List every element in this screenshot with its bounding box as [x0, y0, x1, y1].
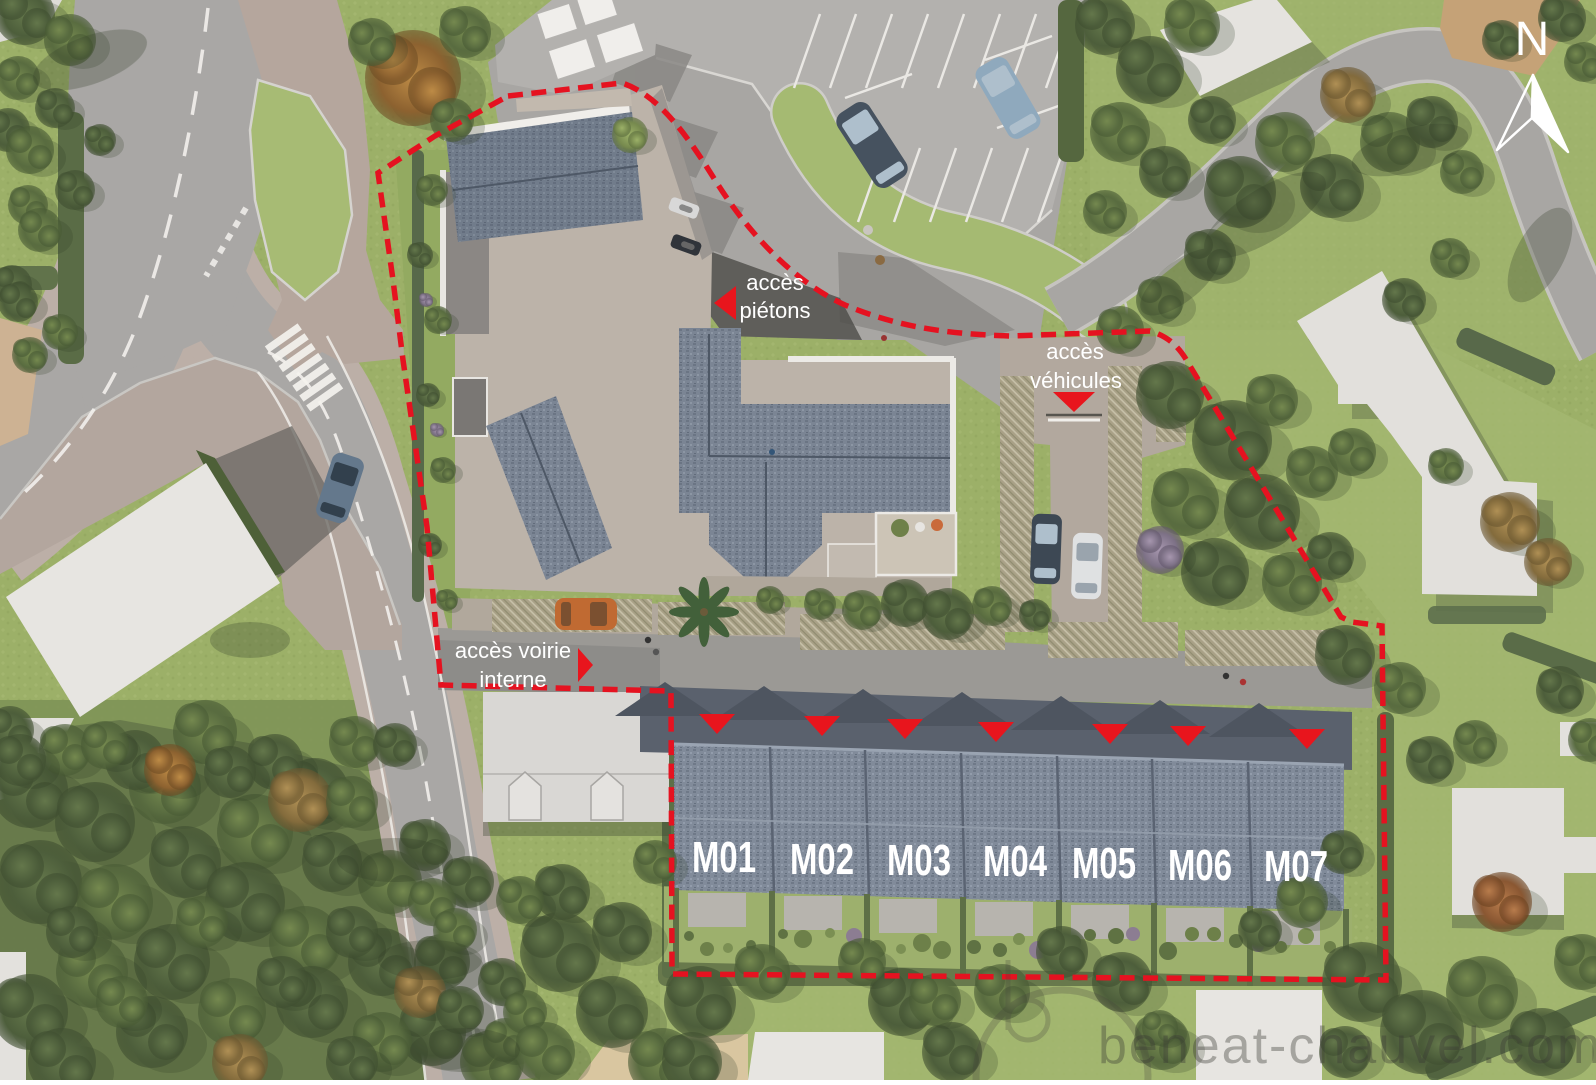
svg-text:accès: accès [746, 270, 803, 295]
svg-text:M03: M03 [887, 836, 951, 885]
svg-text:piétons: piétons [740, 298, 811, 323]
svg-text:M05: M05 [1072, 839, 1136, 888]
svg-text:accès: accès [1046, 339, 1103, 364]
svg-text:accès voirie: accès voirie [455, 638, 571, 663]
svg-text:véhicules: véhicules [1030, 368, 1122, 393]
svg-text:M02: M02 [790, 835, 854, 884]
svg-text:M01: M01 [692, 833, 756, 882]
svg-text:N: N [1515, 13, 1550, 66]
svg-text:M07: M07 [1264, 842, 1328, 891]
svg-text:M06: M06 [1168, 841, 1232, 890]
svg-text:M04: M04 [983, 837, 1047, 886]
svg-text:beneat-chauvel.com: beneat-chauvel.com [1098, 1017, 1596, 1075]
svg-text:interne: interne [479, 667, 546, 692]
